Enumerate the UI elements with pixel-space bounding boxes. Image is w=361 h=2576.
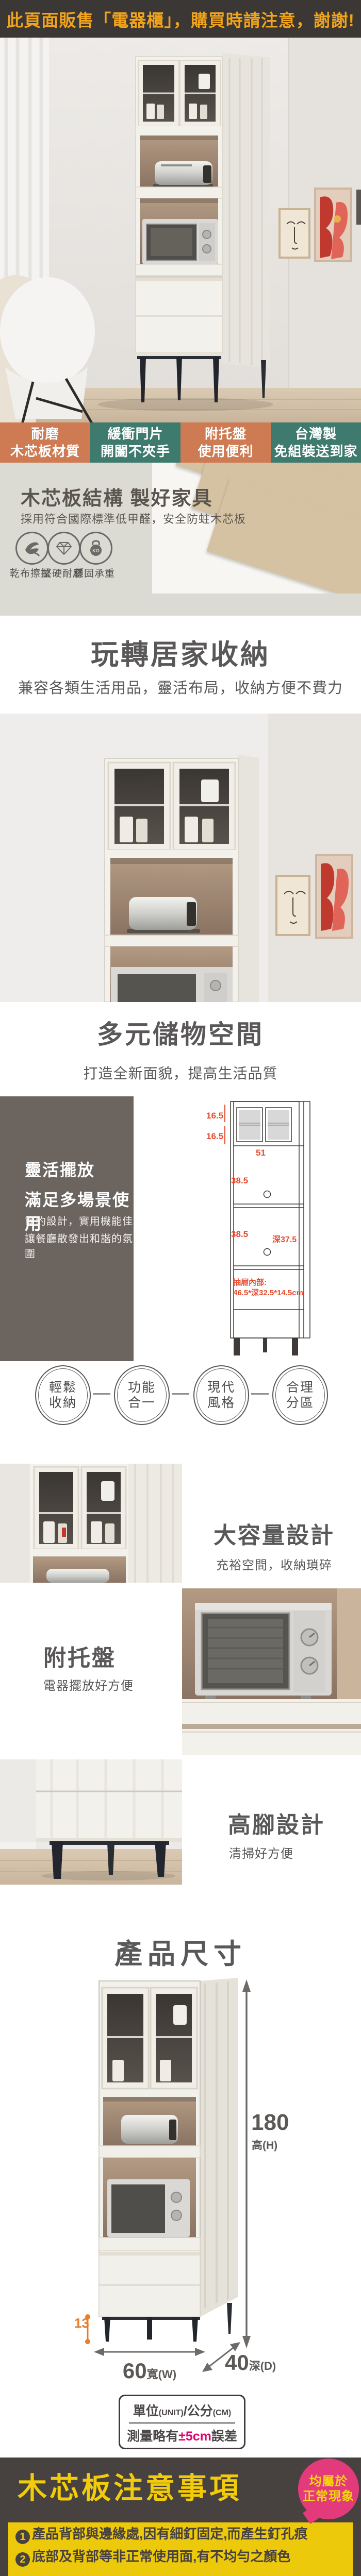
legs-photo	[0, 1759, 182, 1885]
diamond-icon	[55, 539, 73, 557]
oval-feature-all-in-one: 功能合一	[114, 1365, 170, 1425]
dimension-diagram	[204, 1098, 332, 1358]
tolerance-line: 測量略有±5cm誤差	[127, 2424, 237, 2445]
row-title-legs: 高腳設計	[228, 1806, 325, 1839]
width-label: 60寬(W)	[119, 2359, 180, 2383]
row-title-tray: 附托盤	[43, 1639, 116, 1672]
row-sub-tray: 電器擺放好方便	[43, 1675, 134, 1693]
flexible-info-box: 靈活擺放 滿足多場景使用 簡約設計，實用機能佳 讓餐廳散發出和諧的氛圍	[0, 1096, 134, 1361]
dim-label-depth: 深37.5	[272, 1232, 297, 1245]
badge-text: 耐磨	[31, 425, 59, 443]
dim-label-drawer-note2: 46.5*深32.5*14.5cm	[233, 1287, 303, 1298]
multi-storage-title: 多元儲物空間	[0, 1014, 361, 1051]
board-section-heading: 木芯板結構 製好家具	[21, 482, 213, 511]
row-title-capacity: 大容量設計	[214, 1517, 335, 1550]
oval-feature-easy-storage: 輕鬆收納	[35, 1365, 91, 1425]
cabinet-closeup-illustration	[0, 714, 361, 1002]
wood-core-notice-section: 木芯板注意事項 均屬於 正常現象 1產品背部與邊緣處,因有細釘固定,而產生釘孔痕…	[0, 2458, 361, 2576]
notice-point-1: 1產品背部與邊緣處,因有細釘固定,而產生釘孔痕	[15, 2523, 307, 2544]
cabinet-line-drawing	[204, 1098, 332, 1358]
unit-line: 單位(UNIT)/公分(CM)	[129, 2400, 236, 2424]
oval-feature-modern-style: 現代風格	[193, 1365, 249, 1425]
dimension-figure	[72, 1973, 278, 2380]
flexible-desc-line1: 簡約設計，實用機能佳	[25, 1213, 133, 1228]
notice-banner-text: 此頁面販售「電器櫃」，購買時請注意，謝謝!	[6, 7, 355, 31]
oval-connector	[251, 1393, 269, 1395]
oval-connector	[93, 1393, 110, 1395]
svg-text:KG: KG	[92, 548, 100, 553]
notice-title: 木芯板注意事項	[18, 2465, 241, 2507]
cabinet-closeup-photo	[0, 714, 361, 1002]
unit-note-box: 單位(UNIT)/公分(CM) 測量略有±5cm誤差	[119, 2395, 245, 2449]
flexible-desc-line2: 讓餐廳散發出和諧的氛圍	[25, 1230, 134, 1260]
point-number: 1	[15, 2530, 30, 2544]
normal-phenomenon-bubble: 均屬於 正常現象	[298, 2459, 359, 2519]
legs-photo-illustration	[0, 1759, 182, 1885]
dim-label-drawer-note1: 抽屜內部:	[233, 1277, 267, 1287]
point-number: 2	[15, 2552, 30, 2567]
badge-text: 緩衝門片	[107, 425, 163, 443]
wipe-cloth-icon	[23, 539, 41, 557]
kettlebell-icon: KG	[87, 539, 105, 557]
feature-icon-load: KG	[79, 532, 112, 565]
feature-label: 穩固承重	[71, 566, 118, 580]
depth-label: 40深(D)	[225, 2350, 276, 2375]
notice-banner: 此頁面販售「電器櫃」，購買時請注意，謝謝!	[0, 0, 361, 38]
product-page: 此頁面販售「電器櫃」，購買時請注意，謝謝!	[0, 0, 361, 2576]
notice-panel: 1產品背部與邊緣處,因有細釘固定,而產生釘孔痕 2底部及背部等非正常使用面,有不…	[8, 2522, 353, 2576]
height-unit: 高(H)	[252, 2137, 277, 2153]
badge-soft-close: 緩衝門片 開闔不夾手	[90, 422, 180, 463]
badge-tray: 附托盤 使用便利	[180, 422, 271, 463]
badge-text: 台灣製	[295, 425, 337, 443]
feature-icon-wipe	[15, 532, 48, 565]
oval-connector	[172, 1393, 189, 1395]
dim-label-door-lower: 16.5	[206, 1131, 223, 1142]
feature-icon-hard	[47, 532, 80, 565]
multi-storage-subtitle: 打造全新面貌，提高生活品質	[0, 1062, 361, 1083]
dim-label-shelf-lower: 38.5	[231, 1229, 248, 1240]
feature-badges-row: 耐磨 木芯板材質 緩衝門片 開闔不夾手 附托盤 使用便利 台灣製 免組裝送到家	[0, 422, 361, 463]
storage-title: 玩轉居家收納	[0, 632, 361, 672]
dim-label-shelf-upper: 38.5	[231, 1176, 248, 1186]
storage-subtitle: 兼容各類生活用品，靈活布局，收納方便不費力	[0, 676, 361, 698]
badge-text: 開闔不夾手	[101, 443, 170, 460]
capacity-photo	[0, 1464, 182, 1583]
hero-room-illustration	[0, 38, 361, 422]
badge-text: 免組裝送到家	[274, 443, 357, 460]
dim-label-width: 51	[256, 1148, 266, 1158]
capacity-photo-illustration	[0, 1464, 182, 1583]
badge-text: 使用便利	[198, 443, 253, 460]
tray-photo-illustration	[182, 1588, 361, 1755]
badge-taiwan-made: 台灣製 免組裝送到家	[271, 422, 361, 463]
tray-photo	[182, 1588, 361, 1755]
row-sub-legs: 清掃好方便	[229, 1843, 293, 1861]
badge-wear-resistant: 耐磨 木芯板材質	[0, 422, 90, 463]
board-section-subheading: 採用符合國際標準低甲醛，安全防蛀木芯板	[21, 510, 246, 527]
badge-text: 附托盤	[205, 425, 247, 443]
hero-photo	[0, 38, 361, 422]
oval-feature-zoning: 合理分區	[272, 1365, 328, 1425]
height-value: 180	[251, 2110, 289, 2136]
dim-label-door-upper: 16.5	[206, 1111, 223, 1121]
dimensions-title: 產品尺寸	[0, 1931, 361, 1972]
flexible-title-line1: 靈活擺放	[25, 1157, 95, 1181]
notice-point-2: 2底部及背部等非正常使用面,有不均勻之顏色	[15, 2546, 290, 2567]
dimension-figure-illustration	[72, 1973, 278, 2380]
leg-height-value: 13	[74, 2315, 89, 2331]
row-sub-capacity: 充裕空間，收納瑣碎	[216, 1555, 332, 1573]
badge-text: 木芯板材質	[10, 443, 80, 460]
